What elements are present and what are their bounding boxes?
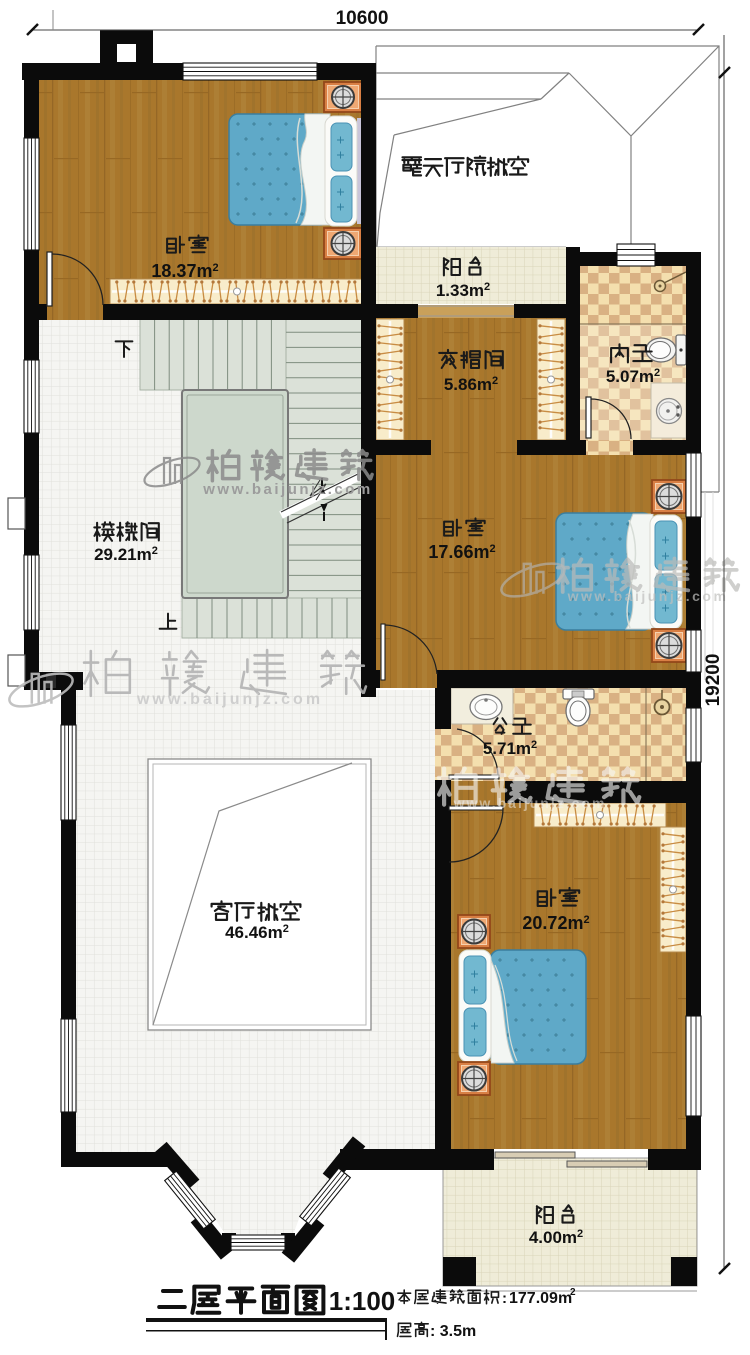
svg-text:17.66m2: 17.66m2 [428,542,495,562]
svg-text:www.baijunjz.com: www.baijunjz.com [453,795,607,811]
svg-text:19200: 19200 [703,654,724,707]
svg-text:www.baijunjz.com: www.baijunjz.com [136,691,323,708]
svg-text:1:100: 1:100 [329,1286,396,1316]
svg-text:177.09m: 177.09m [509,1290,572,1307]
svg-text:5.71m2: 5.71m2 [483,739,537,758]
svg-text:1.33m2: 1.33m2 [436,281,490,300]
svg-text:www.baijunjz.com: www.baijunjz.com [567,588,729,604]
svg-text:2: 2 [570,1287,576,1298]
svg-text:: 3.5m: : 3.5m [430,1323,476,1340]
svg-text:10600: 10600 [336,8,389,29]
svg-text:5.07m2: 5.07m2 [606,367,660,386]
svg-text:29.21m2: 29.21m2 [94,545,158,564]
svg-text:18.37m2: 18.37m2 [151,261,218,281]
svg-text::: : [502,1290,507,1307]
svg-text:5.86m2: 5.86m2 [444,375,498,394]
svg-text:www.baijunjz.com: www.baijunjz.com [202,481,372,498]
svg-text:46.46m2: 46.46m2 [225,923,289,942]
svg-text:20.72m2: 20.72m2 [522,913,589,933]
svg-text:4.00m2: 4.00m2 [529,1228,583,1247]
